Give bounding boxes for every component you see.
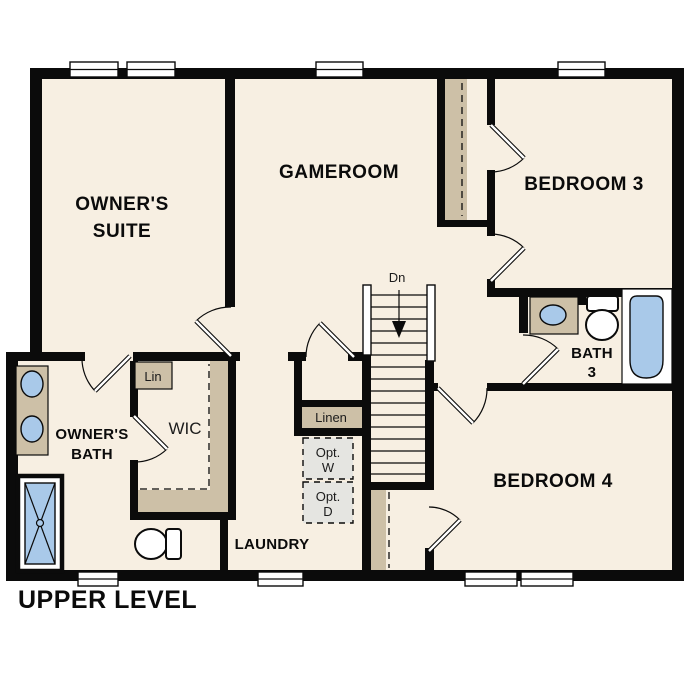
window [70, 62, 118, 77]
opt-dryer-label-line2: D [323, 504, 332, 519]
optional-dryer: Opt. D [303, 482, 353, 523]
window [521, 572, 573, 586]
toilet-fixture [586, 296, 618, 340]
understair-closet-shelf [371, 490, 386, 570]
bath3-label-line2: 3 [588, 364, 597, 381]
bedroom3-closet [445, 79, 467, 220]
opt-dryer-label-line1: Opt. [316, 489, 341, 504]
bathtub-fixture [622, 289, 672, 384]
bedroom3-label: BEDROOM 3 [524, 174, 644, 195]
level-title: UPPER LEVEL [18, 586, 197, 614]
laundry-label: LAUNDRY [235, 536, 310, 553]
stair-rail [363, 285, 371, 355]
window [558, 62, 605, 77]
lin-closet: Lin [135, 362, 172, 389]
toilet-fixture [135, 529, 181, 559]
wic-label: WIC [168, 419, 201, 438]
double-vanity-fixture [16, 366, 48, 455]
floor-plan: Dn Lin Linen Opt. W Opt. D [0, 0, 687, 687]
linen-closet-label: Linen [315, 410, 347, 425]
stair-rail [427, 285, 435, 361]
bath3-label-line1: BATH [571, 345, 613, 362]
optional-washer: Opt. W [303, 438, 353, 479]
bedroom4-label: BEDROOM 4 [493, 471, 613, 492]
window [78, 572, 118, 586]
owners-suite-label-line1: OWNER'S [75, 194, 169, 215]
window [258, 572, 303, 586]
lin-closet-label: Lin [144, 369, 161, 384]
sink-fixture [21, 371, 43, 397]
window [465, 572, 517, 586]
window [316, 62, 363, 77]
stairs-direction-label: Dn [389, 270, 406, 285]
vanity-fixture [530, 297, 578, 334]
gameroom-label: GAMEROOM [279, 162, 399, 183]
owners-bath-label-line2: BATH [71, 446, 113, 463]
linen-closet: Linen [302, 407, 362, 428]
sink-fixture [21, 416, 43, 442]
floor-plan-drawing: Dn Lin Linen Opt. W Opt. D [0, 0, 687, 687]
owners-bath-label-line1: OWNER'S [55, 426, 128, 443]
opt-washer-label-line2: W [322, 460, 335, 475]
sink-fixture [540, 305, 566, 325]
opt-washer-label-line1: Opt. [316, 445, 341, 460]
window [127, 62, 175, 77]
owners-suite-label-line2: SUITE [93, 221, 151, 242]
shower-fixture [18, 476, 62, 571]
